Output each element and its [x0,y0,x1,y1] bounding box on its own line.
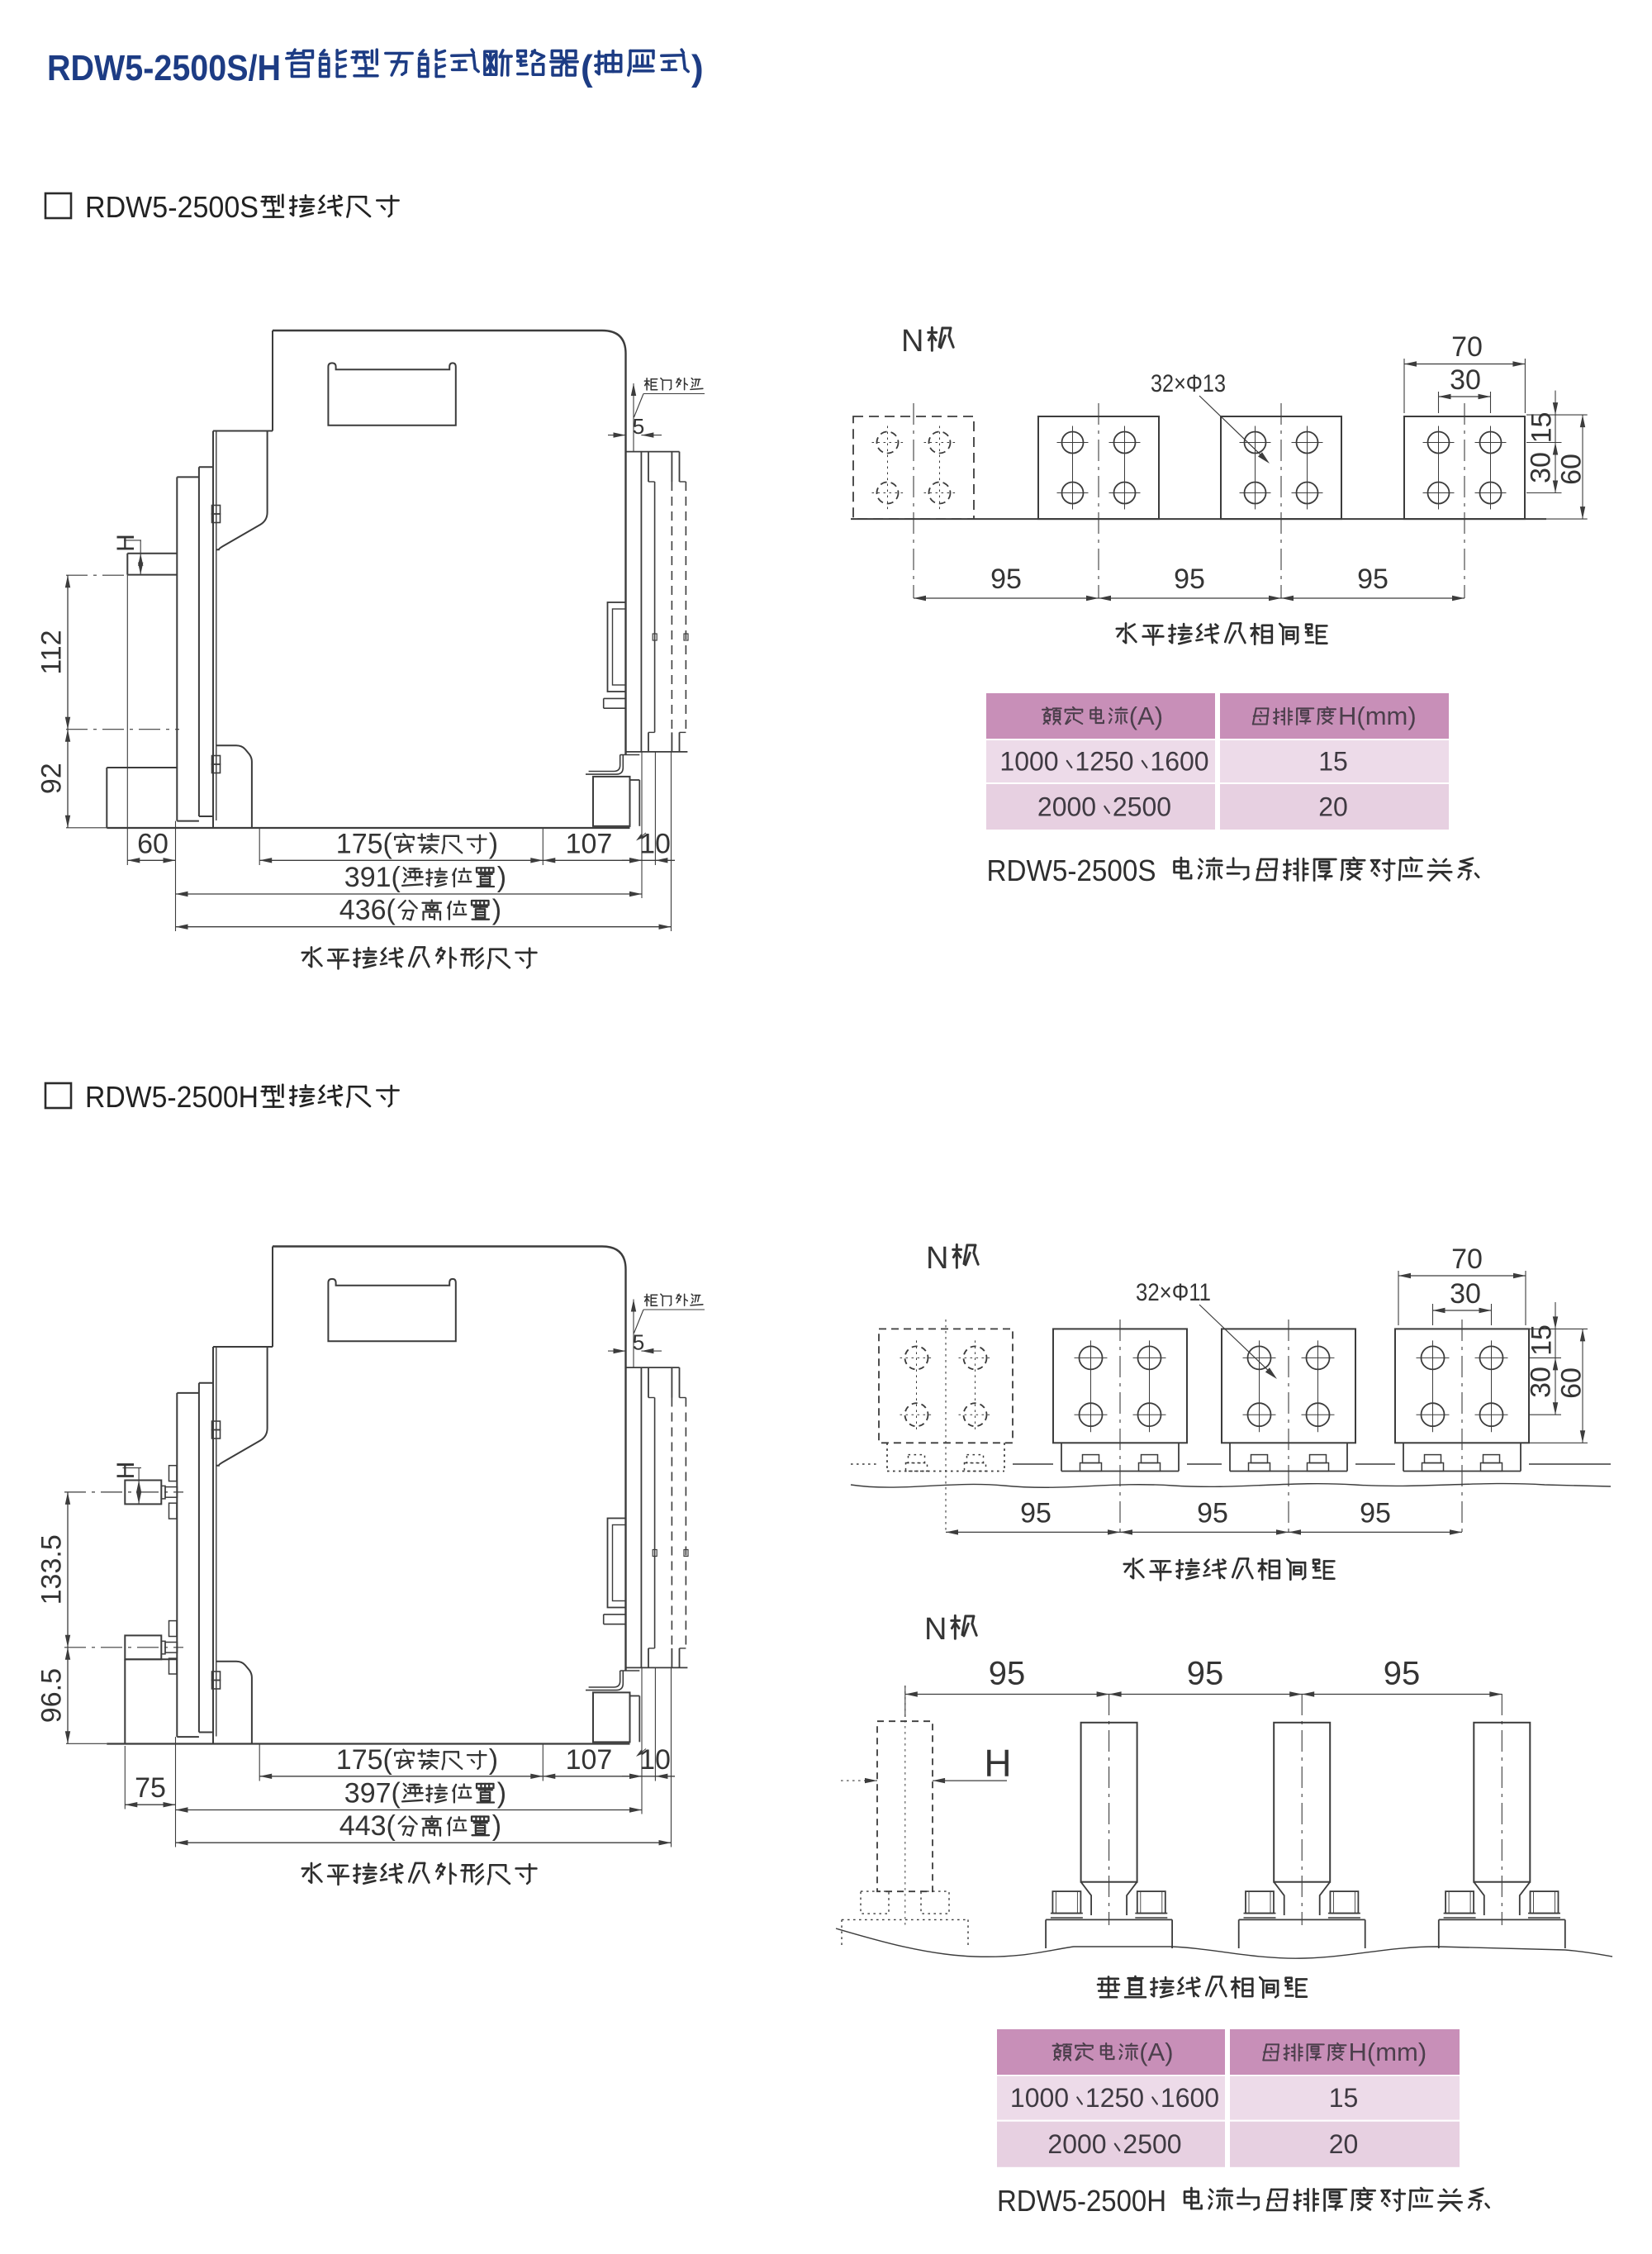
svg-text:20: 20 [1329,2129,1359,2159]
svg-text:2500: 2500 [1123,2129,1181,2159]
svg-text:): ) [489,1744,498,1776]
svg-text:112: 112 [36,630,68,674]
svg-text:10: 10 [639,828,671,859]
svg-text:30: 30 [1450,1278,1481,1310]
svg-text:): ) [492,1810,501,1842]
svg-text:RDW5-2500H: RDW5-2500H [997,2184,1166,2218]
svg-text:): ) [691,48,704,88]
svg-text:): ) [489,828,498,859]
svg-text:32×Φ13: 32×Φ13 [1151,370,1226,397]
svg-text:107: 107 [566,1744,613,1776]
svg-text:70: 70 [1451,331,1483,363]
svg-text:15: 15 [1526,1324,1558,1356]
svg-text:H: H [984,1742,1011,1785]
svg-text:): ) [492,895,501,926]
svg-text:95: 95 [1197,1497,1228,1529]
svg-text:2000: 2000 [1047,2129,1106,2159]
svg-text:92: 92 [36,763,68,794]
svg-text:1250: 1250 [1085,2083,1144,2113]
svg-text:95: 95 [1384,1656,1421,1692]
svg-text:95: 95 [1020,1497,1051,1529]
svg-text:15: 15 [1526,412,1558,444]
svg-text:1000: 1000 [999,747,1058,777]
svg-text:2500: 2500 [1113,792,1171,822]
svg-text:(A): (A) [1139,2038,1173,2066]
svg-text:5: 5 [633,414,644,439]
svg-text:10: 10 [639,1744,671,1776]
svg-text:1600: 1600 [1161,2083,1219,2113]
svg-text:107: 107 [566,828,613,859]
svg-text:30: 30 [1526,1367,1557,1398]
svg-text:96.5: 96.5 [36,1668,68,1723]
svg-text:75: 75 [135,1772,166,1804]
svg-text:32×Φ11: 32×Φ11 [1136,1279,1211,1306]
svg-text:1000: 1000 [1010,2083,1069,2113]
svg-text:N: N [926,1241,948,1276]
svg-text:): ) [497,1778,506,1809]
svg-text:(A): (A) [1129,701,1163,730]
svg-text:95: 95 [1360,1497,1391,1529]
svg-text:60: 60 [137,828,169,859]
svg-text:RDW5-2500S/H: RDW5-2500S/H [47,48,281,88]
svg-text:175(: 175( [336,828,393,859]
svg-text:391(: 391( [344,862,401,893]
svg-text:15: 15 [1318,747,1348,777]
svg-text:1250: 1250 [1075,747,1133,777]
svg-text:397(: 397( [344,1778,401,1809]
svg-text:95: 95 [989,1656,1026,1692]
svg-text:95: 95 [1187,1656,1224,1692]
svg-text:RDW5-2500S: RDW5-2500S [85,190,259,224]
svg-text:): ) [497,862,506,893]
svg-text:436(: 436( [339,895,396,926]
svg-text:60: 60 [1556,454,1588,485]
svg-text:70: 70 [1451,1244,1483,1275]
svg-text:95: 95 [1357,563,1389,595]
svg-text:95: 95 [990,563,1022,595]
svg-text:H(mm): H(mm) [1338,701,1417,730]
svg-text:30: 30 [1450,364,1481,396]
svg-text:175(: 175( [336,1744,393,1776]
svg-text:N: N [924,1612,947,1647]
svg-text:H: H [112,534,140,552]
svg-text:RDW5-2500S: RDW5-2500S [987,854,1156,887]
svg-text:H(mm): H(mm) [1349,2038,1427,2066]
svg-text:(: ( [581,48,593,88]
svg-text:2000: 2000 [1037,792,1096,822]
svg-text:5: 5 [633,1330,644,1355]
svg-text:H: H [112,1462,140,1480]
svg-text:95: 95 [1174,563,1205,595]
svg-text:30: 30 [1526,452,1557,483]
svg-text:20: 20 [1318,792,1348,822]
svg-text:RDW5-2500H: RDW5-2500H [85,1080,259,1114]
svg-text:N: N [901,324,923,359]
svg-text:133.5: 133.5 [36,1534,68,1605]
svg-text:1600: 1600 [1150,747,1208,777]
svg-text:60: 60 [1556,1367,1588,1399]
svg-text:15: 15 [1329,2083,1359,2113]
svg-text:443(: 443( [339,1810,396,1842]
